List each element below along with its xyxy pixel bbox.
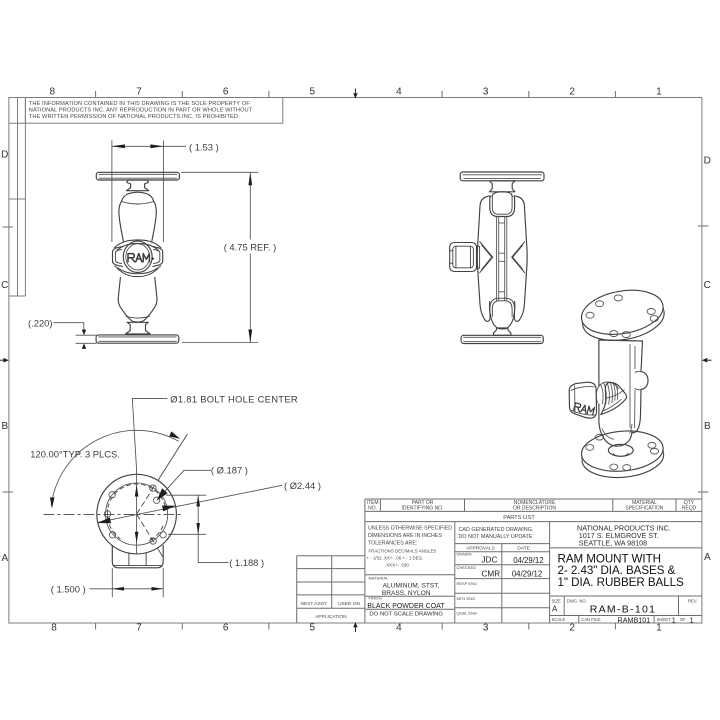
svg-text:SHEET: SHEET — [657, 617, 671, 622]
svg-text:A: A — [704, 552, 711, 563]
svg-text:BLACK POWDER COAT: BLACK POWDER COAT — [367, 603, 445, 610]
svg-text:JDC: JDC — [481, 556, 497, 565]
svg-text:C: C — [1, 280, 8, 291]
svg-text:2: 2 — [569, 87, 575, 98]
svg-text:DWG. NO.: DWG. NO. — [567, 598, 587, 603]
svg-text:NO.: NO. — [368, 506, 377, 512]
svg-text:7: 7 — [136, 87, 142, 98]
svg-text:1: 1 — [656, 87, 662, 98]
svg-text:DIMENSIONS ARE IN INCHES: DIMENSIONS ARE IN INCHES — [368, 533, 442, 539]
svg-text:QUAL ENG: QUAL ENG — [457, 610, 478, 615]
svg-text:(.220): (.220) — [28, 317, 53, 328]
svg-text:TOLERANCES ARE:: TOLERANCES ARE: — [368, 540, 417, 546]
svg-text:OR DESCRIPTION: OR DESCRIPTION — [513, 506, 556, 512]
svg-text:MATERIAL: MATERIAL — [369, 576, 389, 581]
svg-text:THE INFORMATION CONTAINED I: THE INFORMATION CONTAINED IN THIS DRAWIN… — [29, 101, 250, 107]
svg-text:RESP ENG: RESP ENG — [457, 581, 478, 586]
svg-text:3: 3 — [483, 87, 489, 98]
svg-text:120.00°TYP. 3 PLCS.: 120.00°TYP. 3 PLCS. — [30, 449, 120, 460]
svg-text:3: 3 — [483, 623, 489, 634]
svg-text:( 4.75 REF. ): ( 4.75 REF. ) — [224, 241, 277, 252]
svg-text:04/29/12: 04/29/12 — [512, 569, 542, 578]
svg-text:NATIONAL PRODUCTS INC. ANY R: NATIONAL PRODUCTS INC. ANY REPRODUCTION … — [29, 107, 253, 113]
svg-text:( 1.188 ): ( 1.188 ) — [229, 557, 264, 568]
svg-text:1" DIA. RUBBER BALLS: 1" DIA. RUBBER BALLS — [558, 576, 685, 589]
svg-text:SIZE: SIZE — [552, 598, 562, 603]
svg-text:APPROVALS: APPROVALS — [466, 545, 495, 551]
svg-text:1: 1 — [672, 616, 676, 625]
svg-text:4: 4 — [396, 87, 402, 98]
svg-text:( 1.53 ): ( 1.53 ) — [189, 141, 219, 152]
svg-text:CHECKED: CHECKED — [457, 565, 477, 570]
svg-text:IDENTIFYING NO.: IDENTIFYING NO. — [402, 506, 444, 512]
svg-text:PARTS LIST: PARTS LIST — [503, 515, 535, 521]
svg-text:( 1.500 ): ( 1.500 ) — [51, 584, 86, 595]
svg-text:BRASS, NYLON: BRASS, NYLON — [382, 590, 431, 597]
svg-text:5: 5 — [310, 623, 316, 634]
svg-text:B: B — [704, 421, 711, 432]
svg-text:A: A — [1, 553, 8, 564]
svg-text:ALUMINUM, STST,: ALUMINUM, STST, — [383, 583, 440, 590]
svg-text:MFG ENG: MFG ENG — [457, 596, 476, 601]
svg-text:THE WRITTEN PERMISSION OF: THE WRITTEN PERMISSION OF NATIONAL PRODU… — [29, 114, 240, 120]
svg-text:CAD GENERATED DRAWING,: CAD GENERATED DRAWING, — [459, 527, 534, 533]
svg-text:DO NOT SCALE DRAWING: DO NOT SCALE DRAWING — [369, 612, 443, 618]
svg-text:( Ø.187 ): ( Ø.187 ) — [211, 465, 248, 476]
svg-text:DATE: DATE — [517, 545, 529, 551]
svg-text:RAM-B-101: RAM-B-101 — [590, 603, 657, 615]
svg-text:D: D — [704, 156, 711, 167]
svg-text:Ø1.81 BOLT HOLE CENTER: Ø1.81 BOLT HOLE CENTER — [170, 393, 298, 404]
svg-text:RAMB101: RAMB101 — [618, 616, 651, 625]
svg-text:FINISH: FINISH — [369, 595, 382, 600]
svg-text:D: D — [1, 150, 8, 161]
svg-text:DRAWN: DRAWN — [457, 552, 472, 557]
svg-text:8: 8 — [50, 87, 56, 98]
svg-text:4: 4 — [396, 623, 402, 634]
svg-text:SEATTLE, WA 98108: SEATTLE, WA 98108 — [579, 538, 647, 547]
svg-text:6: 6 — [223, 623, 229, 634]
svg-text:NEXT ASSY: NEXT ASSY — [301, 601, 328, 607]
svg-text:.XXX+- .030: .XXX+- .030 — [385, 562, 409, 567]
svg-text:1: 1 — [656, 623, 662, 634]
svg-text:04/29/12: 04/29/12 — [513, 556, 543, 565]
svg-text:CMR: CMR — [481, 569, 500, 578]
svg-text:B: B — [1, 421, 8, 432]
svg-text:APPLICATION: APPLICATION — [315, 614, 347, 620]
svg-text:6: 6 — [223, 87, 229, 98]
svg-text:A: A — [552, 605, 558, 614]
svg-text:USED ON: USED ON — [338, 601, 360, 607]
svg-text:+ - 1/32 .XX+- .06 +: + - 1/32 .XX+- .06 + - 1 DEG. — [367, 555, 424, 560]
svg-text:7: 7 — [136, 623, 142, 634]
svg-text:5: 5 — [310, 87, 316, 98]
svg-text:( Ø2.44 ): ( Ø2.44 ) — [284, 480, 321, 491]
svg-text:REV.: REV. — [688, 598, 697, 603]
svg-text:REQD: REQD — [682, 506, 697, 512]
svg-text:FRACTIONS DECIMALS AN: FRACTIONS DECIMALS ANGLES — [369, 548, 437, 553]
svg-text:UNLESS OTHERWISE SPECIFIED: UNLESS OTHERWISE SPECIFIED — [368, 525, 452, 531]
svg-text:1: 1 — [690, 616, 694, 625]
svg-text:2: 2 — [569, 623, 575, 634]
svg-text:OF: OF — [680, 617, 686, 622]
svg-text:DO NOT MANUALLY UPDATE: DO NOT MANUALLY UPDATE — [459, 534, 533, 540]
svg-text:SPECIFICATION: SPECIFICATION — [625, 506, 663, 512]
svg-text:8: 8 — [51, 623, 57, 634]
svg-text:SCALE: SCALE — [552, 617, 566, 622]
svg-text:CAD FILE:: CAD FILE: — [581, 617, 601, 622]
svg-text:C: C — [704, 280, 711, 291]
